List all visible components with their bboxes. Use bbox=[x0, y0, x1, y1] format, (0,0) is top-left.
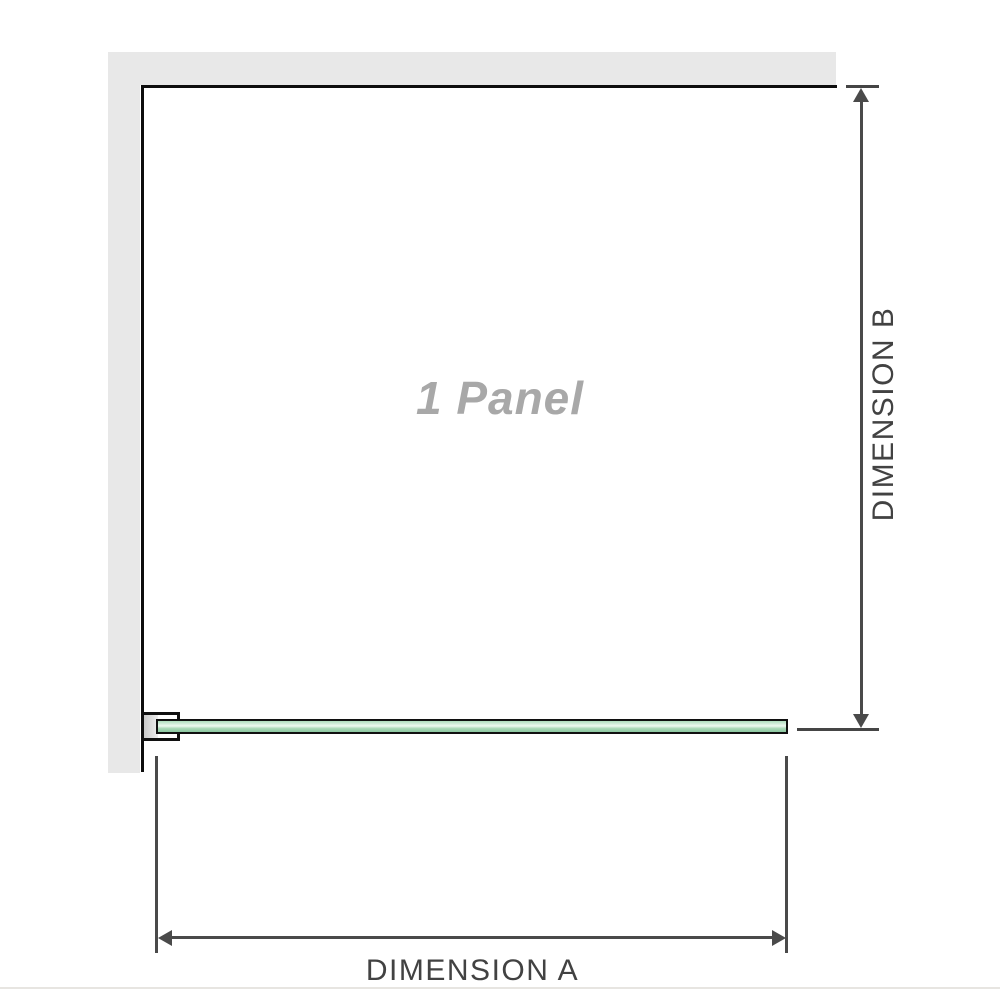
dimension-a-extension-left bbox=[155, 756, 158, 953]
panel-count-label: 1 Panel bbox=[416, 371, 584, 425]
dimension-a-extension-right bbox=[785, 756, 788, 953]
dimension-b-line bbox=[860, 94, 863, 722]
panel-outline-left bbox=[141, 85, 144, 772]
panel-outline-top bbox=[141, 85, 837, 88]
arrow-down-icon bbox=[853, 714, 869, 728]
bottom-divider bbox=[0, 987, 1000, 989]
wall-left bbox=[108, 52, 140, 773]
glass-panel bbox=[156, 719, 788, 734]
arrow-right-icon bbox=[772, 930, 786, 946]
dimension-b-label: DIMENSION B bbox=[867, 307, 901, 522]
arrow-up-icon bbox=[853, 88, 869, 102]
dimension-a-line bbox=[166, 936, 778, 939]
dimension-b-tick-bottom bbox=[797, 728, 879, 731]
dimension-a-label: DIMENSION A bbox=[157, 954, 788, 988]
wall-top bbox=[108, 52, 836, 85]
shower-panel-diagram: 1 Panel DIMENSION B DIMENSION A bbox=[0, 0, 1000, 1000]
arrow-left-icon bbox=[158, 930, 172, 946]
